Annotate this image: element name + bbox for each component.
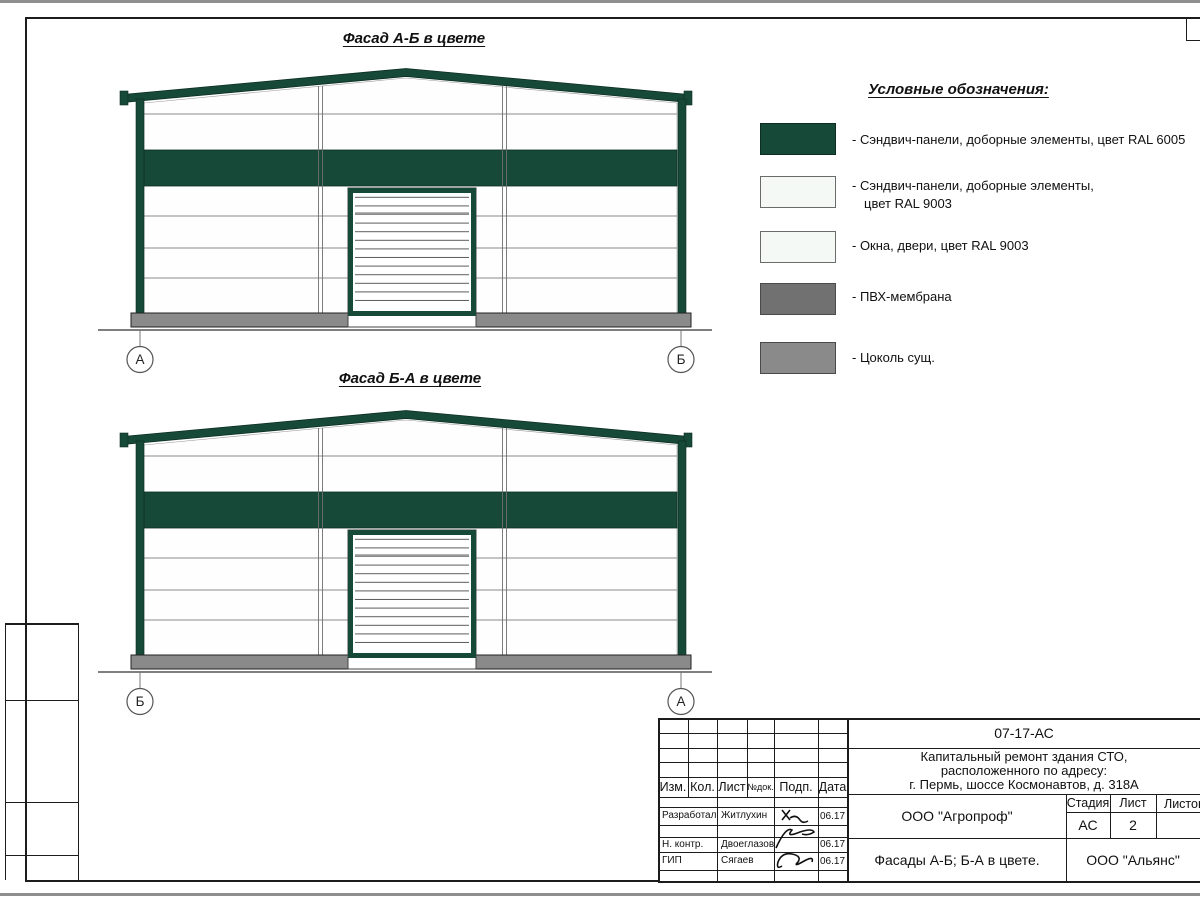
tb-role-3: ГИП	[662, 855, 682, 866]
facade-drawings: А Б Б А	[0, 0, 1200, 760]
tb-name-1: Житлухин	[721, 810, 767, 821]
tb-col-data: Дата	[818, 777, 847, 797]
tb-role-2: Н. контр.	[662, 839, 703, 850]
tb-name-3: Сягаев	[721, 855, 754, 866]
margin-table-line	[5, 802, 79, 803]
tb-name-2: Двоеглазов	[721, 839, 774, 850]
tb-stage-value: АС	[1066, 812, 1110, 838]
legend-title: Условные обозначения:	[866, 81, 1051, 98]
legend-label-ral9003-panels: - Сэндвич-панели, доборные элементы,	[852, 178, 1094, 193]
legend-swatch-pvc-membrane	[760, 283, 836, 315]
tb-sheet-value: 2	[1110, 812, 1156, 838]
tb-project-line2: расположенного по адресу:	[848, 763, 1200, 777]
axis-letter-f2-right: А	[676, 694, 685, 709]
tb-col-izm: Изм.	[658, 777, 688, 797]
title-block: Изм. Кол. Лист №док. Подп. Дата Разработ…	[658, 718, 1200, 882]
axis-letter-f1-right: Б	[677, 352, 686, 367]
tb-contractor: ООО "Альянс"	[1066, 838, 1200, 881]
tb-col-ndok: №док.	[747, 777, 774, 797]
axis-letter-f1-left: А	[135, 352, 144, 367]
tb-role-1: Разработал	[662, 810, 716, 821]
tb-doc-code: 07-17-АС	[848, 718, 1200, 748]
tb-col-list: Лист	[717, 777, 747, 797]
legend-swatch-plinth	[760, 342, 836, 374]
legend-label-ral9003-panels-2: цвет RAL 9003	[864, 196, 952, 211]
facade-1	[98, 69, 712, 373]
legend-label-pvc-membrane: - ПВХ-мембрана	[852, 289, 952, 304]
tb-sheets-label: Листов	[1164, 797, 1200, 811]
tb-project-line3: г. Пермь, шоссе Космонавтов, д. 318А	[848, 777, 1200, 792]
legend-swatch-ral9003-panels	[760, 176, 836, 208]
tb-col-kol: Кол.	[688, 777, 717, 797]
tb-sheet-label: Лист	[1110, 794, 1156, 812]
legend-label-windows-doors: - Окна, двери, цвет RAL 9003	[852, 238, 1029, 253]
tb-drawing-title: Фасады А-Б; Б-А в цвете.	[848, 838, 1066, 881]
margin-table-line	[5, 855, 79, 856]
signature-3	[772, 848, 818, 872]
legend-label-plinth: - Цоколь сущ.	[852, 350, 935, 365]
axis-letter-f2-left: Б	[136, 694, 145, 709]
sheet-bottom-edge	[0, 893, 1200, 896]
drawing-sheet: Фасад А-Б в цвете Фасад Б-А в цвете	[0, 0, 1200, 900]
tb-stage-label: Стадия	[1066, 794, 1110, 812]
facade-2	[98, 411, 712, 715]
legend-swatch-ral6005	[760, 123, 836, 155]
signature-2	[772, 824, 818, 850]
signature-1	[776, 806, 816, 824]
tb-project-line1: Капитальный ремонт здания СТО,	[848, 749, 1200, 763]
tb-date-3: 06.17	[818, 852, 847, 870]
tb-col-podp: Подп.	[774, 777, 818, 797]
tb-date-1: 06.17	[818, 807, 847, 825]
tb-org: ООО "Агропроф"	[848, 794, 1066, 838]
legend-label-ral6005: - Сэндвич-панели, доборные элементы, цве…	[852, 132, 1185, 147]
legend-swatch-windows-doors	[760, 231, 836, 263]
tb-date-2: 06.17	[818, 837, 847, 852]
